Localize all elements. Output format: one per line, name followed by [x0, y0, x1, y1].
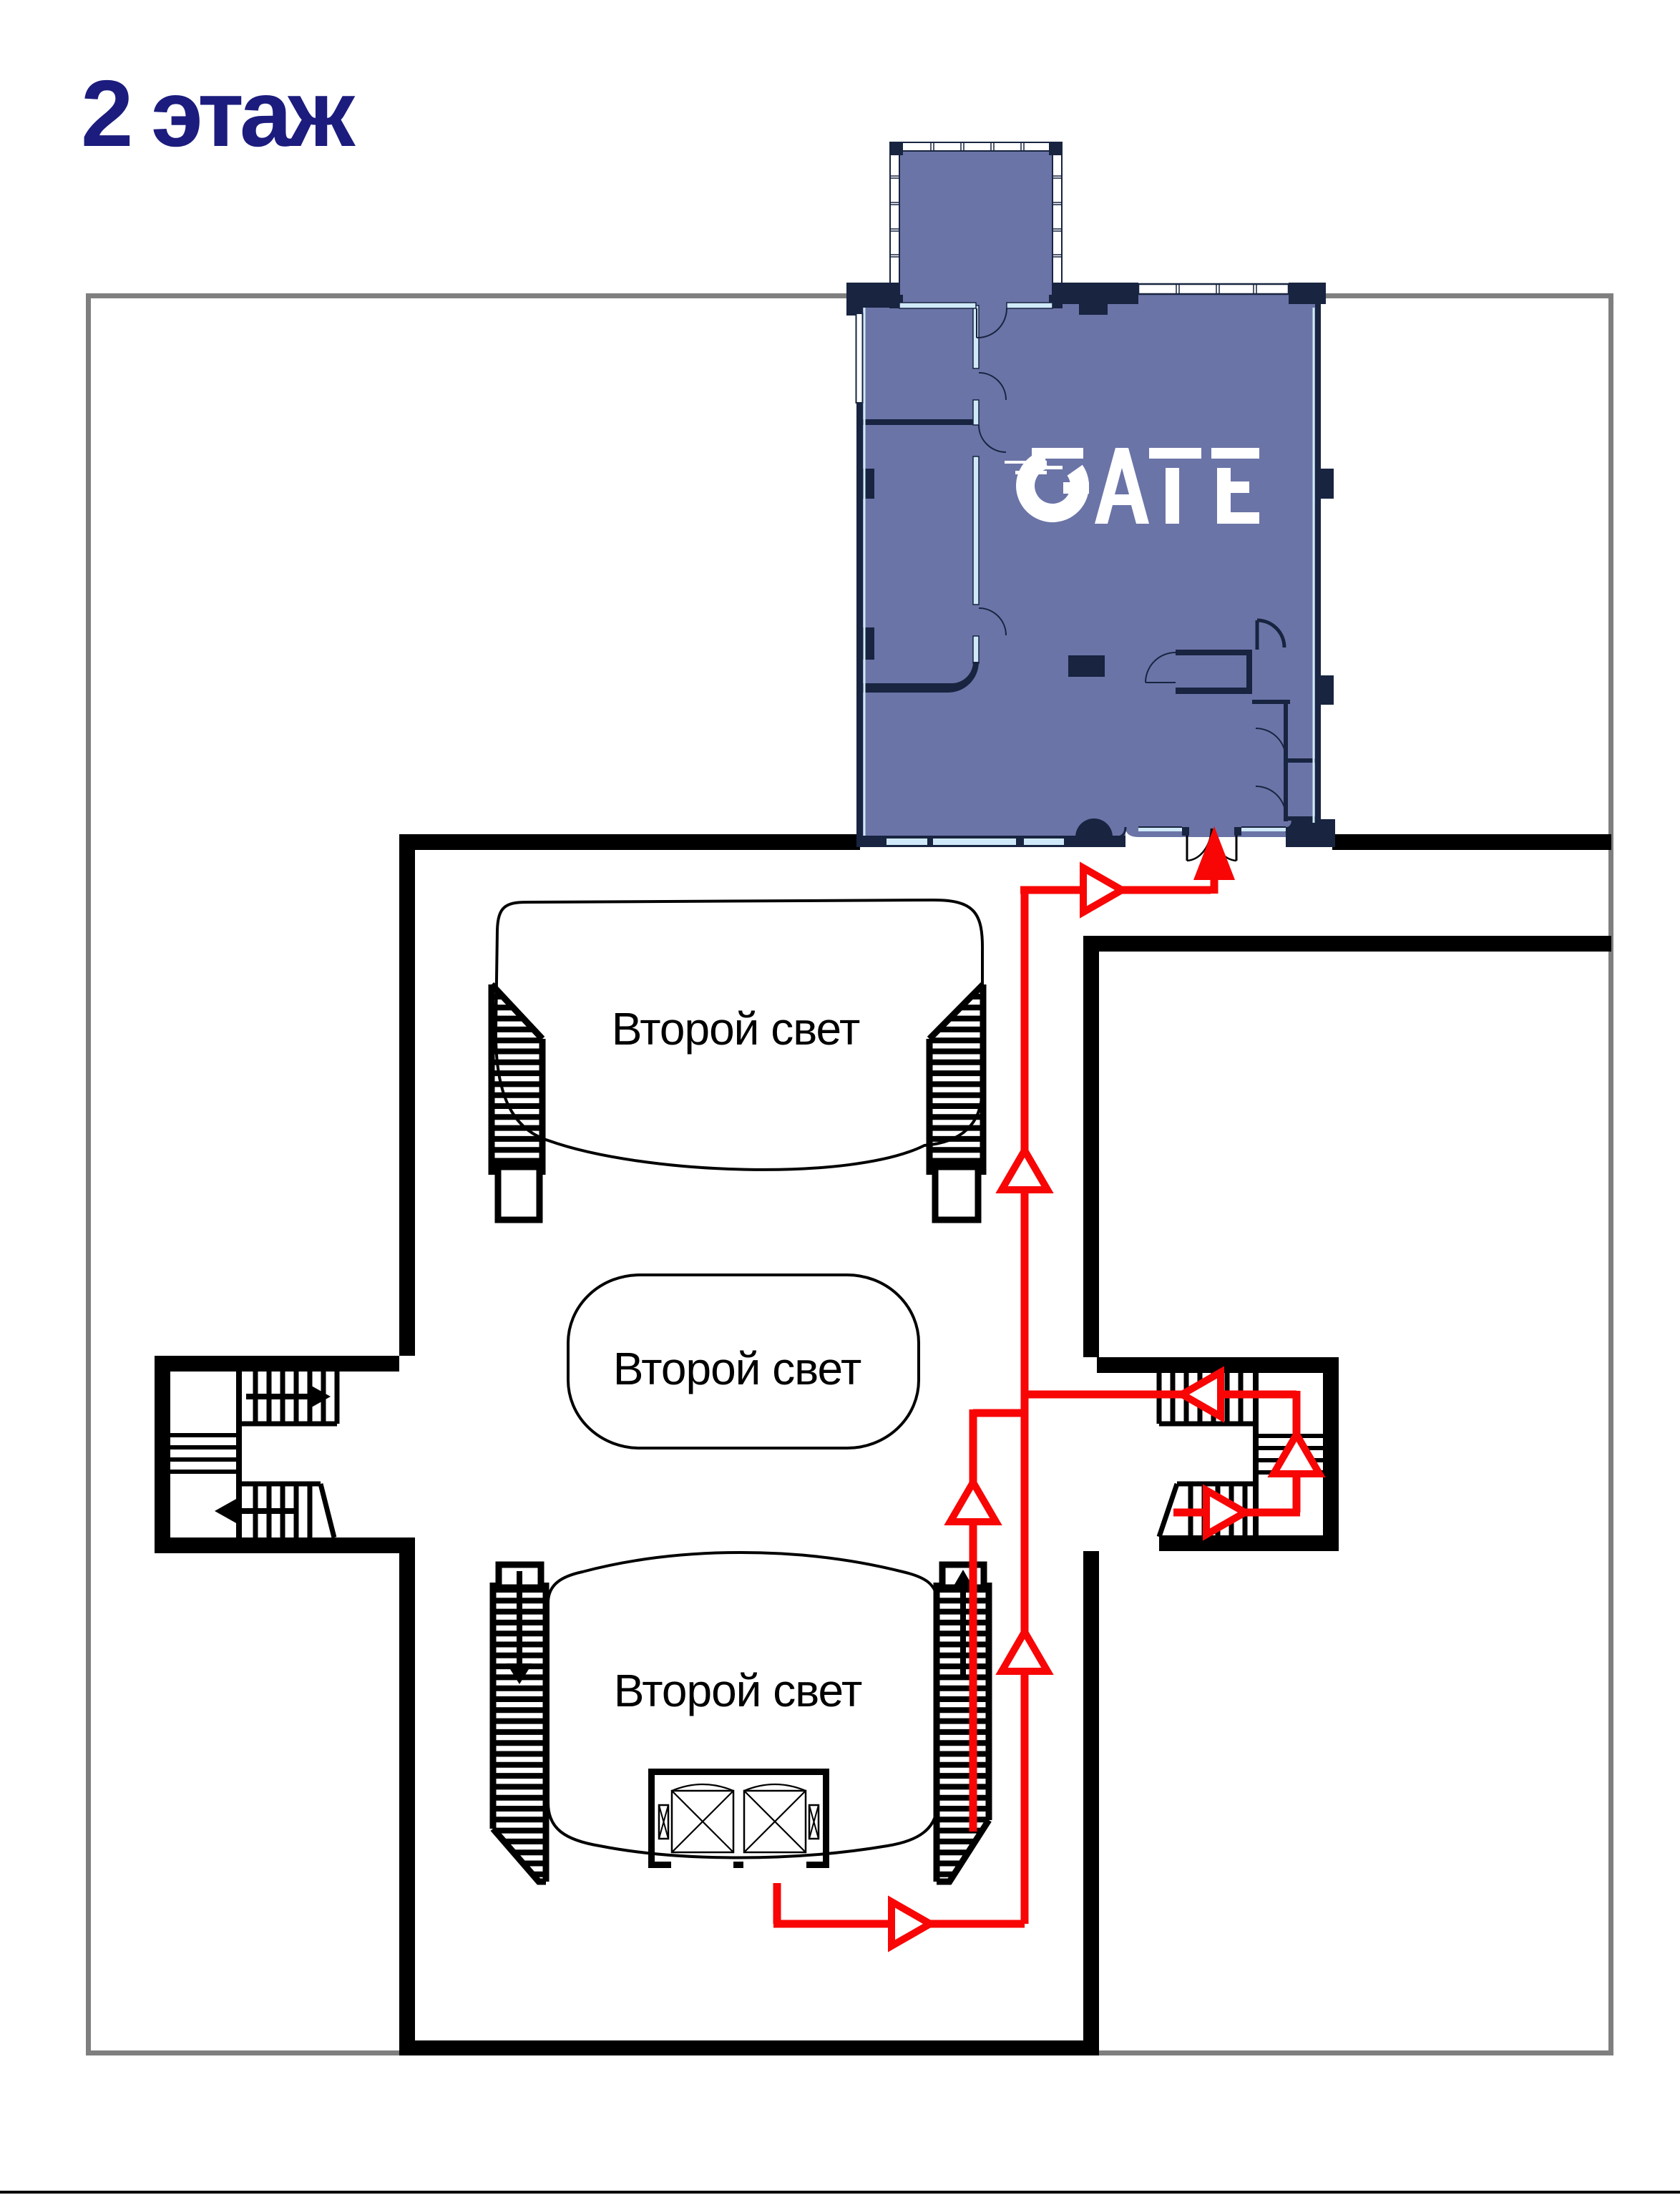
svg-text:2 этаж: 2 этаж: [81, 61, 356, 166]
svg-text:Второй свет: Второй свет: [612, 1003, 860, 1055]
svg-text:Второй свет: Второй свет: [614, 1665, 862, 1716]
svg-text:Второй свет: Второй свет: [613, 1343, 861, 1394]
